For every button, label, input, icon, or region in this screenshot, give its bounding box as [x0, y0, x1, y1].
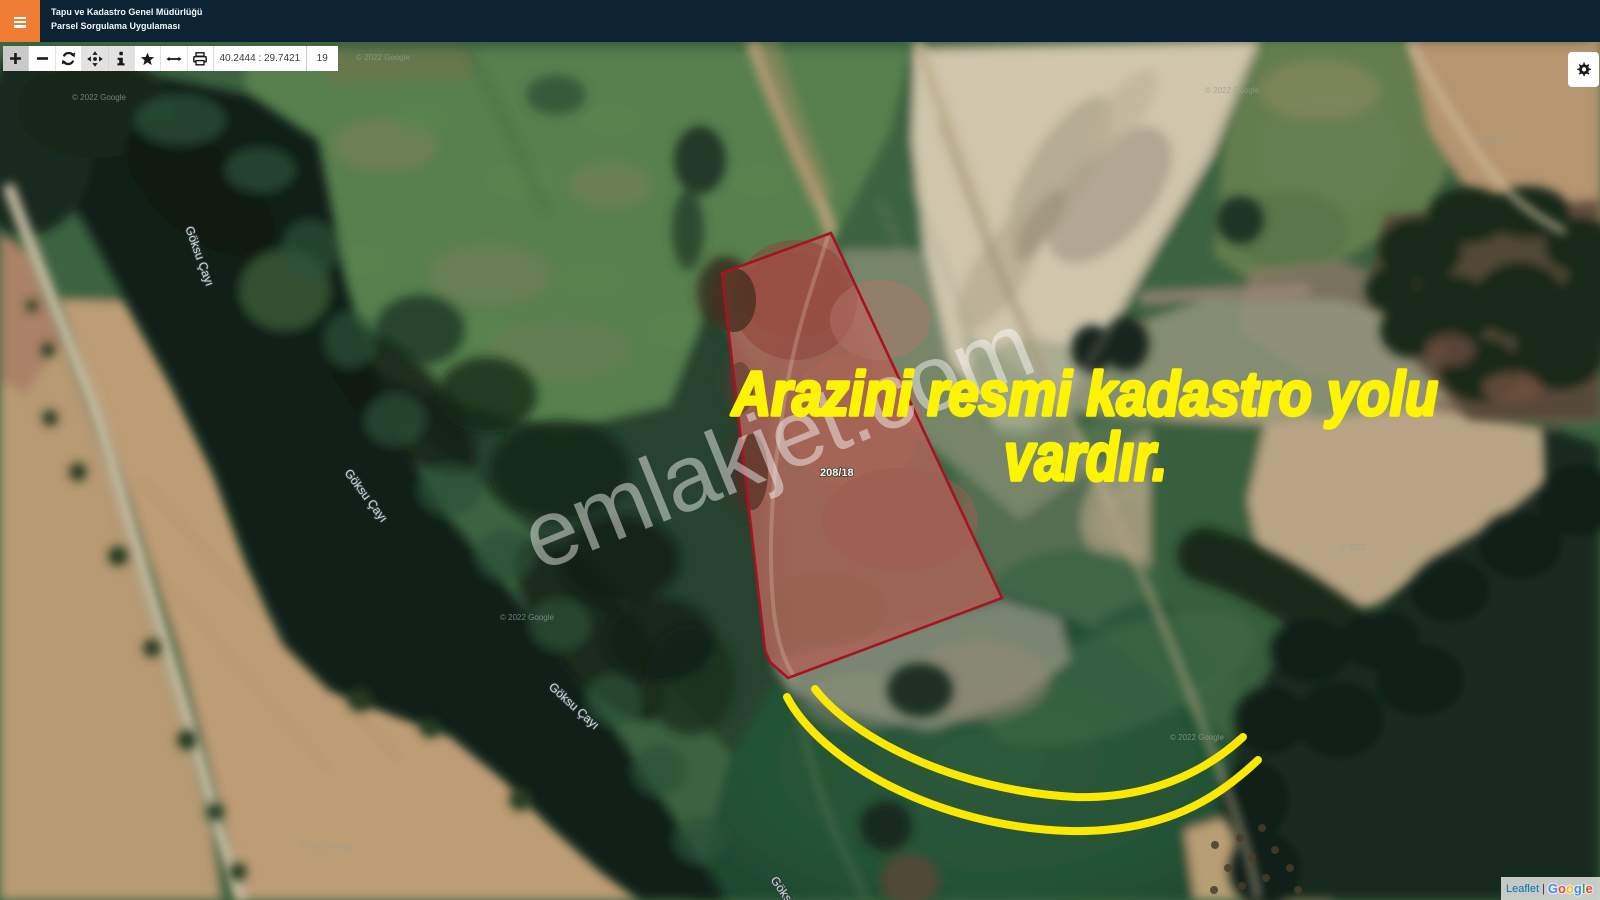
- svg-text:vardır.: vardır.: [1004, 419, 1167, 495]
